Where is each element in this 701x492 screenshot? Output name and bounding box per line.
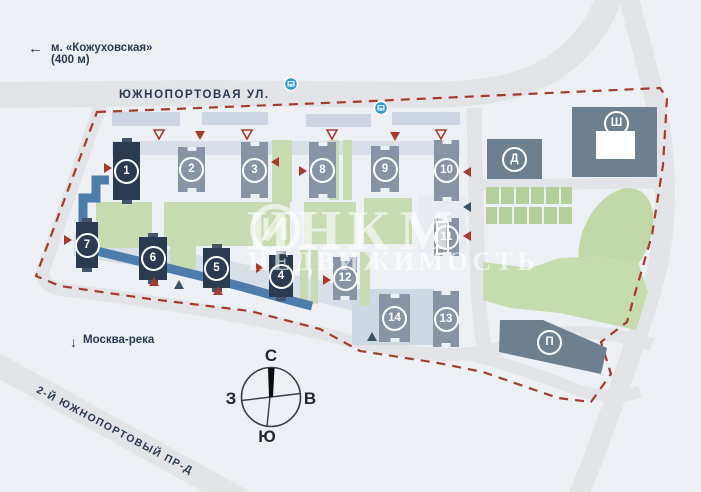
- building-p-label: П: [537, 330, 562, 355]
- building-4[interactable]: 4: [269, 255, 293, 297]
- metro-distance: (400 м): [51, 54, 90, 66]
- building-sh-label: Ш: [604, 111, 629, 136]
- metro-name: м. «Кожуховская»: [51, 42, 152, 54]
- building-d-label: Д: [502, 147, 527, 172]
- street-label-main: ЮЖНОПОРТОВАЯ УЛ.: [119, 89, 270, 101]
- building-7[interactable]: 7: [76, 222, 98, 268]
- building-2-label: 2: [179, 157, 204, 182]
- building-11[interactable]: 11: [434, 218, 459, 256]
- building-sh[interactable]: Ш: [572, 107, 657, 177]
- building-10-label: 10: [434, 158, 459, 183]
- building-4-label: 4: [269, 264, 294, 289]
- building-6[interactable]: 6: [139, 237, 167, 280]
- metro-text: м. «Кожуховская» (400 м): [51, 42, 152, 66]
- river-direction: ↓ Москва-река: [70, 334, 154, 350]
- building-5-label: 5: [204, 256, 229, 281]
- building-1-label: 1: [114, 159, 139, 184]
- down-arrow-icon: ↓: [70, 334, 77, 350]
- building-12[interactable]: 12: [333, 257, 357, 300]
- building-14[interactable]: 14: [379, 294, 410, 342]
- building-3-label: 3: [242, 158, 267, 183]
- building-8[interactable]: 8: [309, 142, 336, 198]
- building-7-label: 7: [75, 233, 100, 258]
- building-1[interactable]: 1: [113, 142, 140, 200]
- building-13[interactable]: 13: [433, 291, 459, 347]
- left-arrow-icon: ←: [28, 42, 43, 66]
- garden-grid: [486, 187, 572, 224]
- building-d[interactable]: Д: [487, 139, 542, 179]
- building-11-wing: [436, 221, 449, 255]
- building-14-label: 14: [382, 306, 407, 331]
- building-9[interactable]: 9: [371, 146, 399, 192]
- building-5[interactable]: 5: [203, 248, 230, 288]
- building-2[interactable]: 2: [178, 147, 205, 192]
- building-13-label: 13: [434, 307, 459, 332]
- building-3[interactable]: 3: [241, 142, 268, 198]
- building-10[interactable]: 10: [434, 140, 459, 201]
- metro-direction: ← м. «Кожуховская» (400 м): [28, 42, 152, 66]
- river-name: Москва-река: [83, 334, 154, 350]
- site-plan-map: 1 2 3 8 9 10 11 7 6 5 4 12 14 13 Д Ш П: [0, 0, 701, 492]
- building-12-label: 12: [333, 266, 358, 291]
- building-8-label: 8: [310, 158, 335, 183]
- building-6-label: 6: [141, 246, 166, 271]
- building-9-label: 9: [373, 157, 398, 182]
